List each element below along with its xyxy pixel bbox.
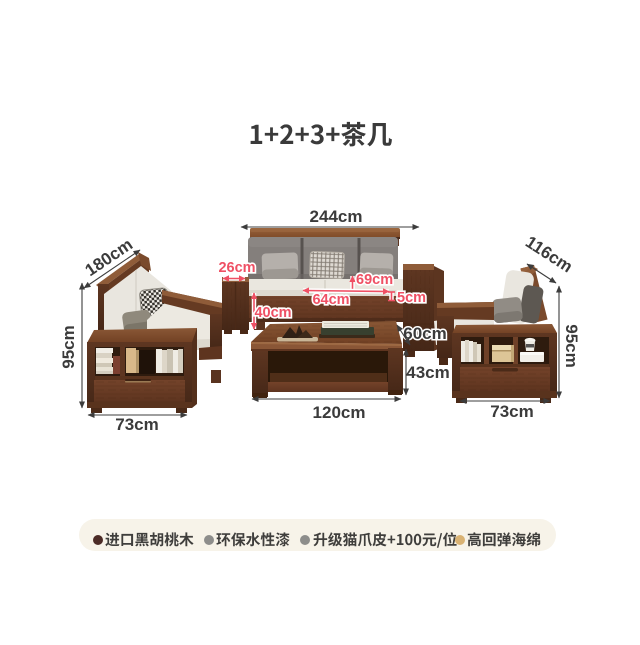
svg-text:73cm: 73cm [115, 415, 158, 434]
svg-text:5cm: 5cm [397, 290, 426, 306]
svg-text:95cm: 95cm [59, 325, 78, 368]
svg-text:26cm: 26cm [218, 260, 255, 276]
svg-text:244cm: 244cm [310, 207, 363, 226]
svg-text:120cm: 120cm [313, 403, 366, 422]
svg-text:73cm: 73cm [490, 402, 533, 421]
svg-text:64cm: 64cm [312, 292, 349, 308]
svg-text:43cm: 43cm [406, 363, 449, 382]
svg-text:69cm: 69cm [356, 272, 393, 288]
svg-text:40cm: 40cm [254, 305, 291, 321]
svg-text:60cm: 60cm [403, 324, 446, 343]
svg-text:95cm: 95cm [562, 324, 581, 367]
